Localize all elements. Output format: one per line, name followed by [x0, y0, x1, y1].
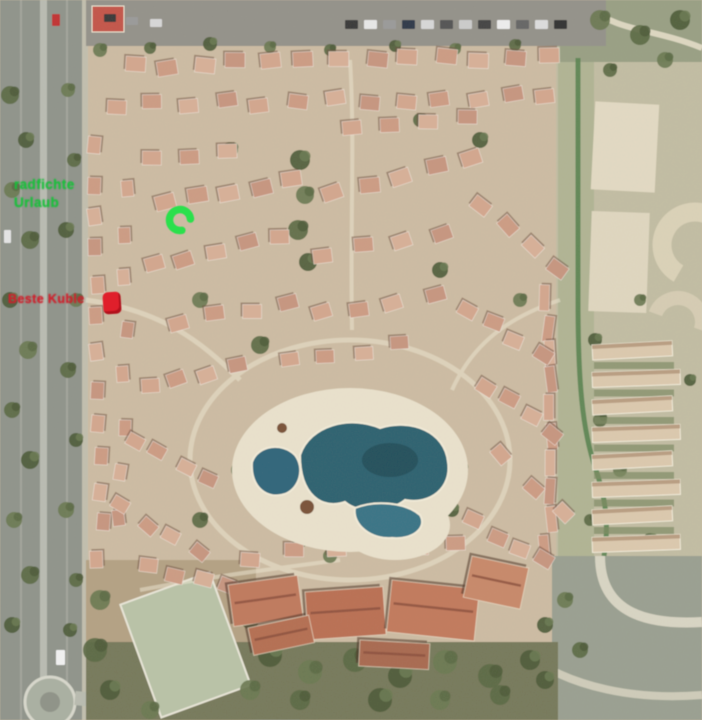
red-annotation-label: Beste Kuble [8, 292, 85, 306]
green-annotation-line2: Urlaub [14, 194, 75, 212]
green-location-marker [160, 200, 200, 240]
red-location-marker [102, 291, 121, 314]
green-annotation-label: radfichte Urlaub [14, 176, 75, 212]
aerial-photo [0, 0, 702, 720]
satellite-map: radfichte Urlaub Beste Kuble [0, 0, 702, 720]
green-annotation-line1: radfichte [14, 176, 75, 194]
green-ring-icon [160, 200, 200, 240]
